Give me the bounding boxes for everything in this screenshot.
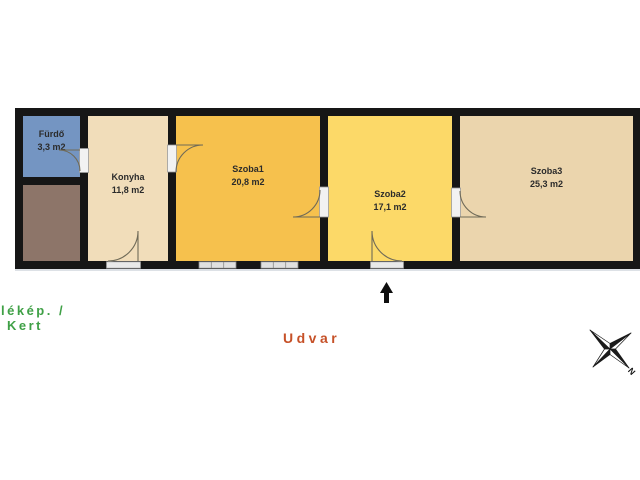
room-name: Szoba2 (328, 188, 452, 201)
wall-szoba2-szoba3 (452, 116, 460, 261)
room-area: 3,3 m2 (23, 141, 80, 154)
room-szoba3: Szoba3 25,3 m2 (460, 116, 633, 261)
wall-szoba1-szoba2 (320, 116, 328, 261)
room-label-szoba3: Szoba3 25,3 m2 (460, 165, 633, 191)
arrow-stem (384, 292, 389, 303)
courtyard-label: Udvar (283, 330, 340, 346)
wall-left (15, 108, 23, 269)
room-bathroom: Fürdő 3,3 m2 (23, 116, 80, 177)
room-label-kitchen: Konyha 11,8 m2 (88, 171, 168, 197)
room-label-szoba2: Szoba2 17,1 m2 (328, 188, 452, 214)
compass-icon: N (582, 320, 640, 382)
wall-top (15, 108, 640, 116)
room-label-bathroom: Fürdő 3,3 m2 (23, 128, 80, 154)
wall-bathroom-kitchen (80, 116, 88, 261)
room-area: 20,8 m2 (176, 176, 320, 189)
room-name: Szoba1 (176, 163, 320, 176)
floorplan-image: Fürdő 3,3 m2 Konyha 11,8 m2 Szoba1 20,8 … (0, 0, 640, 480)
room-area: 17,1 m2 (328, 201, 452, 214)
wall-right (633, 108, 640, 269)
garden-label: lékép. / Kert (1, 303, 65, 333)
room-area: 11,8 m2 (88, 184, 168, 197)
room-name: Szoba3 (460, 165, 633, 178)
room-kitchen: Konyha 11,8 m2 (88, 116, 168, 261)
wall-bottom (15, 261, 640, 269)
entrance-arrow-icon (374, 278, 400, 306)
arrow-head (380, 282, 393, 293)
room-name: Fürdő (23, 128, 80, 141)
room-szoba2: Szoba2 17,1 m2 (328, 116, 452, 261)
room-area: 25,3 m2 (460, 178, 633, 191)
room-label-szoba1: Szoba1 20,8 m2 (176, 163, 320, 189)
garden-label-line2: Kert (7, 318, 65, 333)
wall-bathroom-pantry (23, 177, 80, 185)
garden-label-line1: lékép. / (1, 303, 65, 318)
room-szoba1: Szoba1 20,8 m2 (176, 116, 320, 261)
room-name: Konyha (88, 171, 168, 184)
room-pantry (23, 185, 80, 261)
plan-shadow-line (15, 269, 640, 271)
compass-star (590, 330, 631, 368)
wall-kitchen-szoba1 (168, 116, 176, 261)
